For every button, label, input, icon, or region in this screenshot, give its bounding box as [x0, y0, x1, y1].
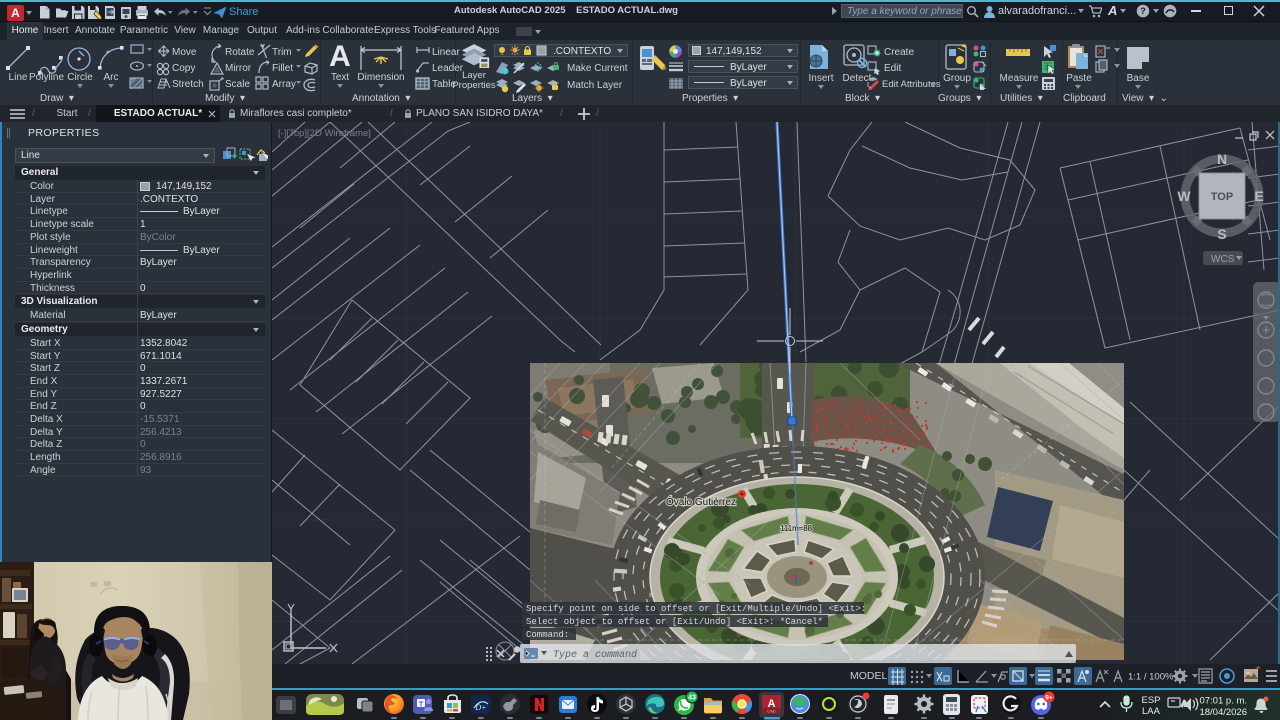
svg-text:Specify point on side to offse: Specify point on side to offset or [Exit…: [526, 604, 866, 614]
svg-text:W: W: [1177, 188, 1191, 204]
svg-text:9+: 9+: [1045, 695, 1053, 702]
svg-text:[-][Top][2D Wireframe]: [-][Top][2D Wireframe]: [278, 128, 371, 139]
svg-text:Select object to offset or [Ex: Select object to offset or [Exit/Undo] <…: [526, 617, 823, 627]
svg-text:CAD: CAD: [767, 709, 776, 714]
svg-text:TOP: TOP: [1211, 191, 1233, 203]
svg-text:WCS: WCS: [1211, 254, 1235, 265]
svg-text:1:1 / 100%: 1:1 / 100%: [1128, 672, 1174, 683]
svg-text:Command:: Command:: [526, 630, 569, 640]
svg-text:E: E: [1254, 188, 1263, 204]
svg-text:18/04/2026: 18/04/2026: [1199, 707, 1247, 718]
svg-text:Óvalo Gutiérrez: Óvalo Gutiérrez: [666, 495, 736, 508]
svg-text:LAA: LAA: [1142, 706, 1161, 717]
svg-text:07:01 p. m.: 07:01 p. m.: [1199, 696, 1247, 707]
svg-text:Type a command: Type a command: [553, 649, 637, 661]
svg-text:N: N: [1217, 151, 1227, 167]
svg-text:43: 43: [688, 695, 696, 702]
svg-text:D+: D+: [474, 703, 486, 712]
svg-text:ESP: ESP: [1141, 695, 1160, 706]
svg-text:?: ?: [1140, 6, 1146, 16]
svg-text:T: T: [419, 699, 424, 708]
svg-text:S: S: [1217, 226, 1226, 242]
